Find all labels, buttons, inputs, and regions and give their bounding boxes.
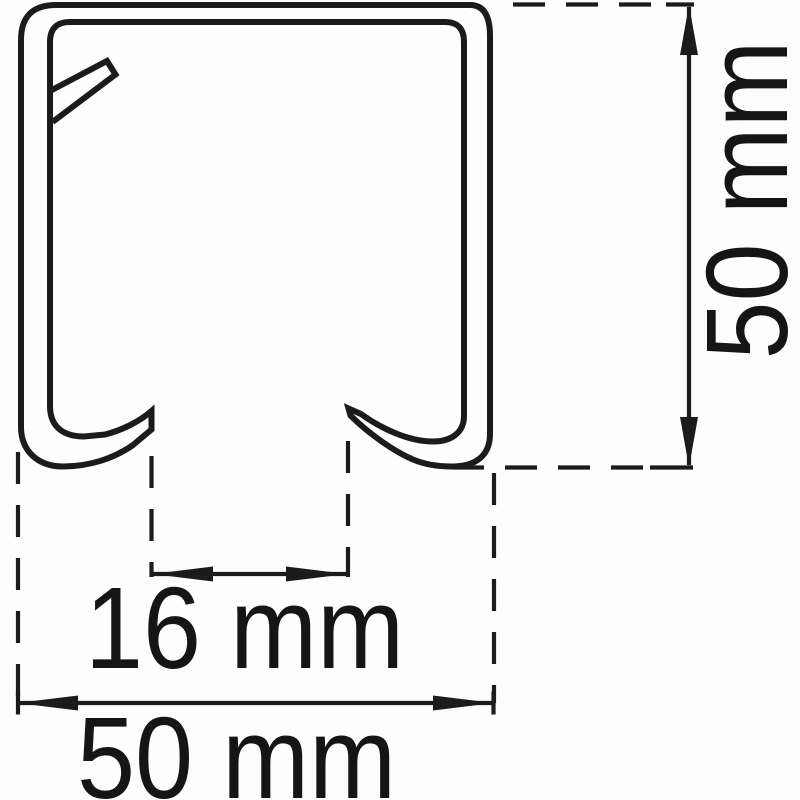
- width-dimension-label: 50 mm: [77, 700, 396, 800]
- channel-profile-outline: [21, 5, 490, 467]
- width-arrow-left-icon: [17, 696, 78, 711]
- height-arrow-down-icon: [680, 417, 698, 467]
- width-arrow-right-icon: [433, 696, 494, 711]
- snap-tab-outline: [50, 61, 116, 122]
- technical-drawing: 50 mm 16 mm 50 mm: [0, 0, 800, 800]
- height-dimension-label: 50 mm: [689, 38, 800, 362]
- slot-dimension-label: 16 mm: [85, 570, 404, 686]
